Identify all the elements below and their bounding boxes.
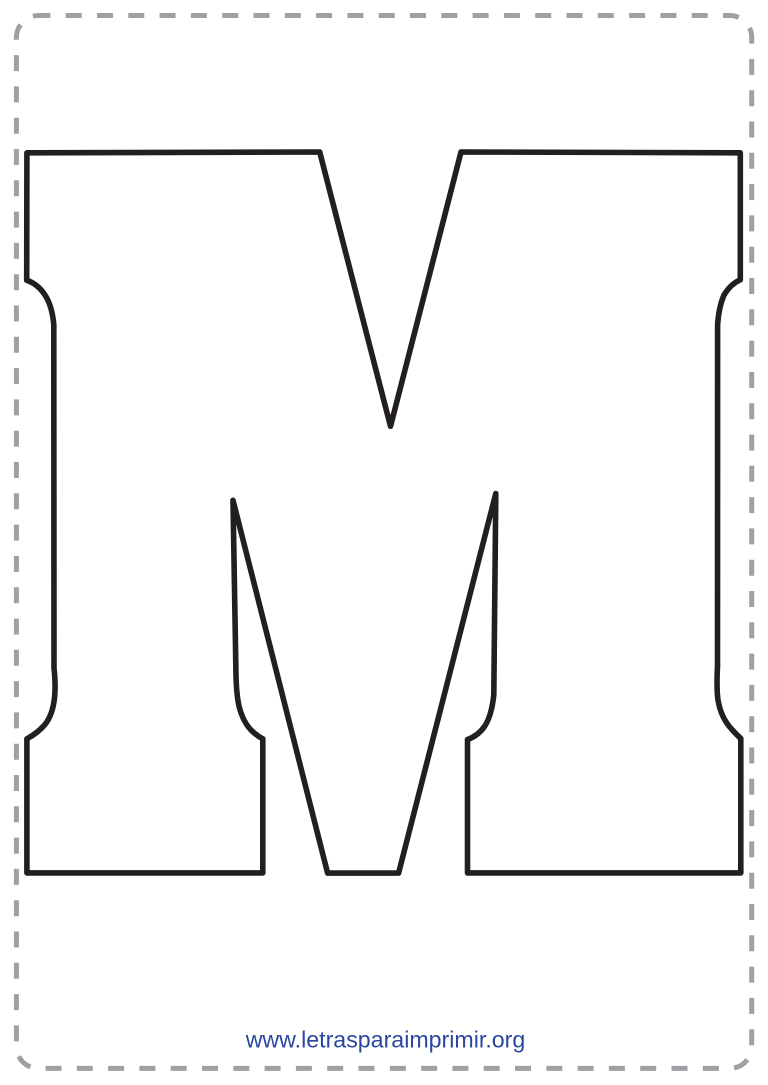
svg-text:www.letrasparaimprimir.org: www.letrasparaimprimir.org [245, 1027, 526, 1053]
